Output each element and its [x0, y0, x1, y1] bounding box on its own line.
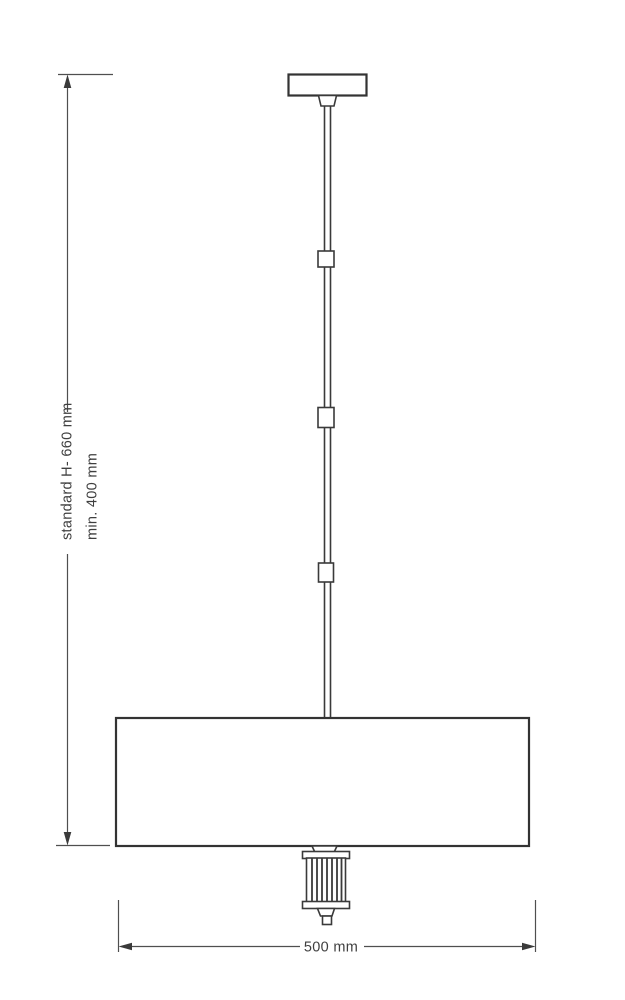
arrow-down-icon — [64, 832, 72, 846]
standard-height-label: standard H- 660 mm — [60, 402, 76, 540]
finial-tip — [323, 916, 332, 925]
arrow-up-icon — [64, 75, 72, 89]
drum-lamp-shade — [116, 718, 529, 846]
finial — [303, 846, 350, 925]
height-dimension: standard H- 660 mm min. 400 mm — [56, 75, 113, 846]
width-label: 500 mm — [304, 940, 358, 956]
arrow-left-icon — [119, 943, 133, 951]
rod-coupler-top — [318, 251, 334, 267]
rod-coupler-bottom — [319, 563, 334, 582]
technical-drawing-page: standard H- 660 mm min. 400 mm 500 mm — [0, 0, 625, 1000]
min-height-label: min. 400 mm — [85, 453, 101, 540]
canopy-neck — [319, 96, 337, 107]
pendant-lamp-fixture — [116, 75, 529, 925]
finial-bottom-cap — [303, 902, 350, 909]
finial-step — [318, 909, 335, 917]
ceiling-canopy-plate — [289, 75, 367, 96]
arrow-right-icon — [522, 943, 536, 951]
rod-coupler-middle — [318, 408, 334, 428]
pendant-lamp-technical-drawing: standard H- 660 mm min. 400 mm 500 mm — [0, 0, 625, 1000]
